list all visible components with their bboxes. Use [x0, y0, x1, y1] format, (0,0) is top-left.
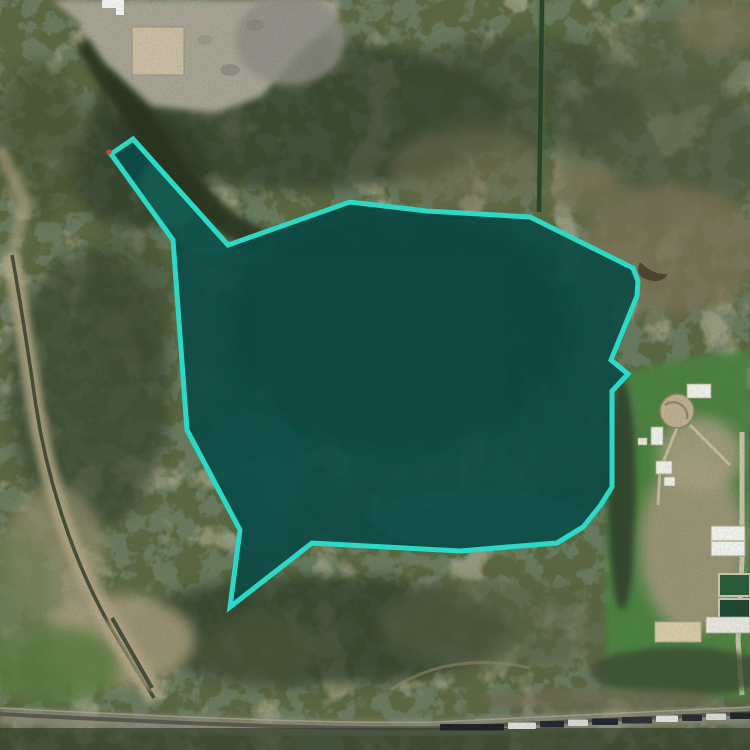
marker-dot — [107, 150, 112, 155]
satellite-map[interactable] — [0, 0, 750, 750]
map-canvas[interactable] — [0, 0, 750, 750]
